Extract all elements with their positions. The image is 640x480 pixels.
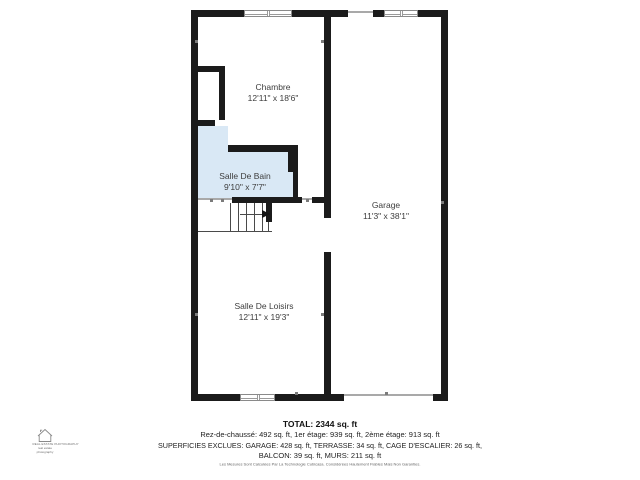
room-dimensions: 11'3" x 38'1" bbox=[336, 211, 436, 222]
window bbox=[240, 394, 275, 401]
room-name: Salle De Bain bbox=[195, 171, 295, 182]
wall-middle-upper bbox=[324, 17, 331, 218]
stairs-direction-line bbox=[240, 214, 264, 215]
house-icon bbox=[36, 428, 54, 443]
window bbox=[244, 10, 292, 17]
garage-door-opening bbox=[344, 394, 433, 396]
logo-text-line3: photography bbox=[33, 451, 58, 453]
floor-plan: Chambre 12'11" x 18'6" Salle De Bain 9'1… bbox=[0, 0, 640, 480]
room-dimensions: 12'11" x 19'3" bbox=[204, 312, 324, 323]
room-label-salle-de-bain: Salle De Bain 9'10" x 7'7" bbox=[195, 171, 295, 193]
room-name: Garage bbox=[336, 200, 436, 211]
floor-areas-text: Rez-de-chaussé: 492 sq. ft, 1er étage: 9… bbox=[0, 430, 640, 439]
room-label-garage: Garage 11'3" x 38'1" bbox=[336, 200, 436, 222]
bathroom-door-opening bbox=[198, 198, 232, 200]
logo-text-line1: REAL ESTATE PHOTOGRAPHY bbox=[33, 443, 58, 445]
wall-bathroom-top bbox=[228, 145, 293, 152]
wall-bottom-right-corner bbox=[433, 394, 448, 401]
photographer-logo: REAL ESTATE PHOTOGRAPHY real estate phot… bbox=[20, 428, 70, 455]
terrace-opening bbox=[348, 11, 373, 13]
room-dimensions: 9'10" x 7'7" bbox=[195, 182, 295, 193]
tick bbox=[321, 40, 324, 43]
disclaimer-text: Les Mesures Sont Calculées Par La Techno… bbox=[160, 462, 480, 467]
tick bbox=[221, 199, 224, 202]
room-label-salle-de-loisirs: Salle De Loisirs 12'11" x 19'3" bbox=[204, 301, 324, 323]
logo-text-line2: real estate bbox=[33, 447, 58, 449]
wall-middle-lower bbox=[324, 252, 331, 394]
room-name: Salle De Loisirs bbox=[204, 301, 324, 312]
tick bbox=[385, 392, 388, 395]
tick bbox=[306, 199, 309, 202]
excluded-areas-text-2: BALCON: 39 sq. ft, MURS: 211 sq. ft bbox=[0, 451, 640, 460]
tick bbox=[295, 392, 298, 395]
wall-left bbox=[191, 10, 198, 401]
excluded-areas-text-1: SUPERFICIES EXCLUES: GARAGE: 428 sq. ft,… bbox=[0, 441, 640, 450]
room-dimensions: 12'11" x 18'6" bbox=[213, 93, 333, 104]
tick bbox=[195, 313, 198, 316]
wall-closet-bottom bbox=[198, 120, 215, 126]
tick bbox=[195, 40, 198, 43]
stairs-direction-arrow-icon bbox=[262, 210, 270, 218]
tick bbox=[441, 201, 444, 204]
wall-bathroom-right-thick bbox=[288, 145, 298, 172]
room-label-chambre: Chambre 12'11" x 18'6" bbox=[213, 82, 333, 104]
total-area-text: TOTAL: 2344 sq. ft bbox=[0, 419, 640, 429]
wall-hall-stub bbox=[312, 197, 324, 203]
window bbox=[384, 10, 418, 17]
tick bbox=[210, 199, 213, 202]
room-name: Chambre bbox=[213, 82, 333, 93]
wall-right bbox=[441, 10, 448, 401]
